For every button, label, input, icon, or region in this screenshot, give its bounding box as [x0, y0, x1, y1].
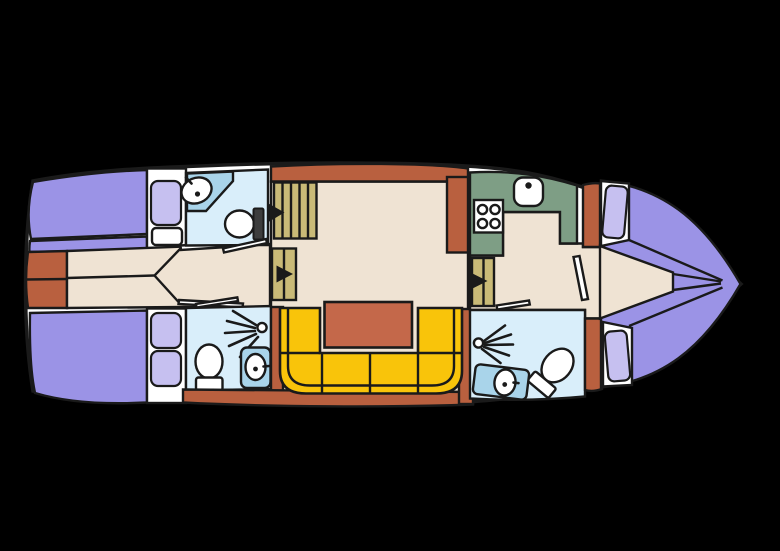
aft-shelf	[152, 228, 182, 245]
aft-locker-divider	[27, 279, 68, 280]
pillow-icon	[602, 185, 628, 239]
pillow-icon	[151, 351, 181, 386]
salon-right-wall	[447, 177, 468, 253]
pillow-icon	[151, 313, 181, 348]
companionway-steps-top	[269, 183, 317, 239]
pillow-icon	[604, 330, 630, 382]
salon-top-sidedeck	[271, 164, 468, 182]
bow-bathroom	[470, 301, 602, 401]
steps-galley	[471, 258, 495, 306]
galley-bow-wall-top	[583, 183, 600, 247]
sink-unit	[472, 364, 529, 400]
bathroom-bow-wall	[585, 319, 602, 391]
aft-bathroom-bottom	[186, 297, 273, 390]
toilet-tank	[254, 209, 264, 240]
boat-floor-plan	[0, 0, 780, 551]
steps-mid	[272, 249, 296, 301]
faucet-icon	[514, 383, 519, 384]
toilet-icon	[196, 345, 223, 379]
faucet-dot	[525, 182, 531, 188]
aft-berth-bottom	[30, 311, 147, 404]
faucet-icon	[264, 366, 270, 367]
toilet-icon	[225, 211, 254, 238]
stove-icon	[474, 200, 503, 233]
pillow-icon	[151, 181, 181, 225]
sink-unit	[241, 348, 271, 389]
drain-dot	[195, 191, 200, 196]
aft-bathroom-top	[177, 170, 268, 253]
sink-icon	[514, 178, 543, 207]
aft-berth-top	[29, 170, 147, 239]
dining-table	[325, 302, 413, 348]
floor-plan-canvas	[0, 0, 780, 551]
